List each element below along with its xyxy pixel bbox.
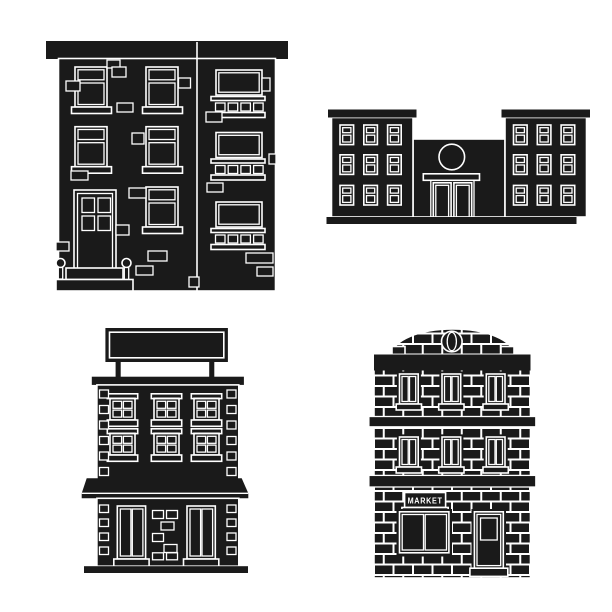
shop-signboard <box>105 328 227 377</box>
market-door <box>470 509 508 576</box>
shop-cornice <box>92 377 244 385</box>
shop-awning <box>82 478 249 498</box>
shop-upper-body <box>97 385 239 481</box>
market-floor2-windows <box>396 434 508 473</box>
civic-right-wing <box>502 110 591 218</box>
apartment-balconies <box>211 70 265 250</box>
market-sign-label: MARKET <box>408 496 443 506</box>
icon-cell-shop[interactable] <box>0 306 306 612</box>
shop-building-icon[interactable] <box>0 306 306 612</box>
apartment-roof <box>46 41 288 59</box>
civic-center-section <box>413 139 505 217</box>
market-floor1-windows <box>396 371 508 410</box>
shop-door-right <box>184 506 219 566</box>
market-arch <box>392 329 514 355</box>
civic-left-wing <box>328 110 417 218</box>
civic-base <box>327 217 577 224</box>
apartment-building-icon[interactable] <box>0 0 306 306</box>
civic-building-icon[interactable] <box>306 0 612 306</box>
market-band-1 <box>369 417 536 427</box>
icon-cell-apartment[interactable] <box>0 0 306 306</box>
icon-cell-market[interactable]: MARKET <box>306 306 612 612</box>
market-building-icon[interactable]: MARKET <box>306 306 612 612</box>
market-band-2 <box>369 475 536 487</box>
icon-cell-civic[interactable] <box>306 0 612 306</box>
shop-storefront <box>97 498 239 566</box>
shop-base <box>84 566 248 573</box>
arch-medallion <box>442 331 463 352</box>
market-storefront-window <box>397 509 453 557</box>
icon-grid: MARKET <box>0 0 612 612</box>
shop-door-left <box>114 506 149 566</box>
apartment-door <box>74 190 116 272</box>
